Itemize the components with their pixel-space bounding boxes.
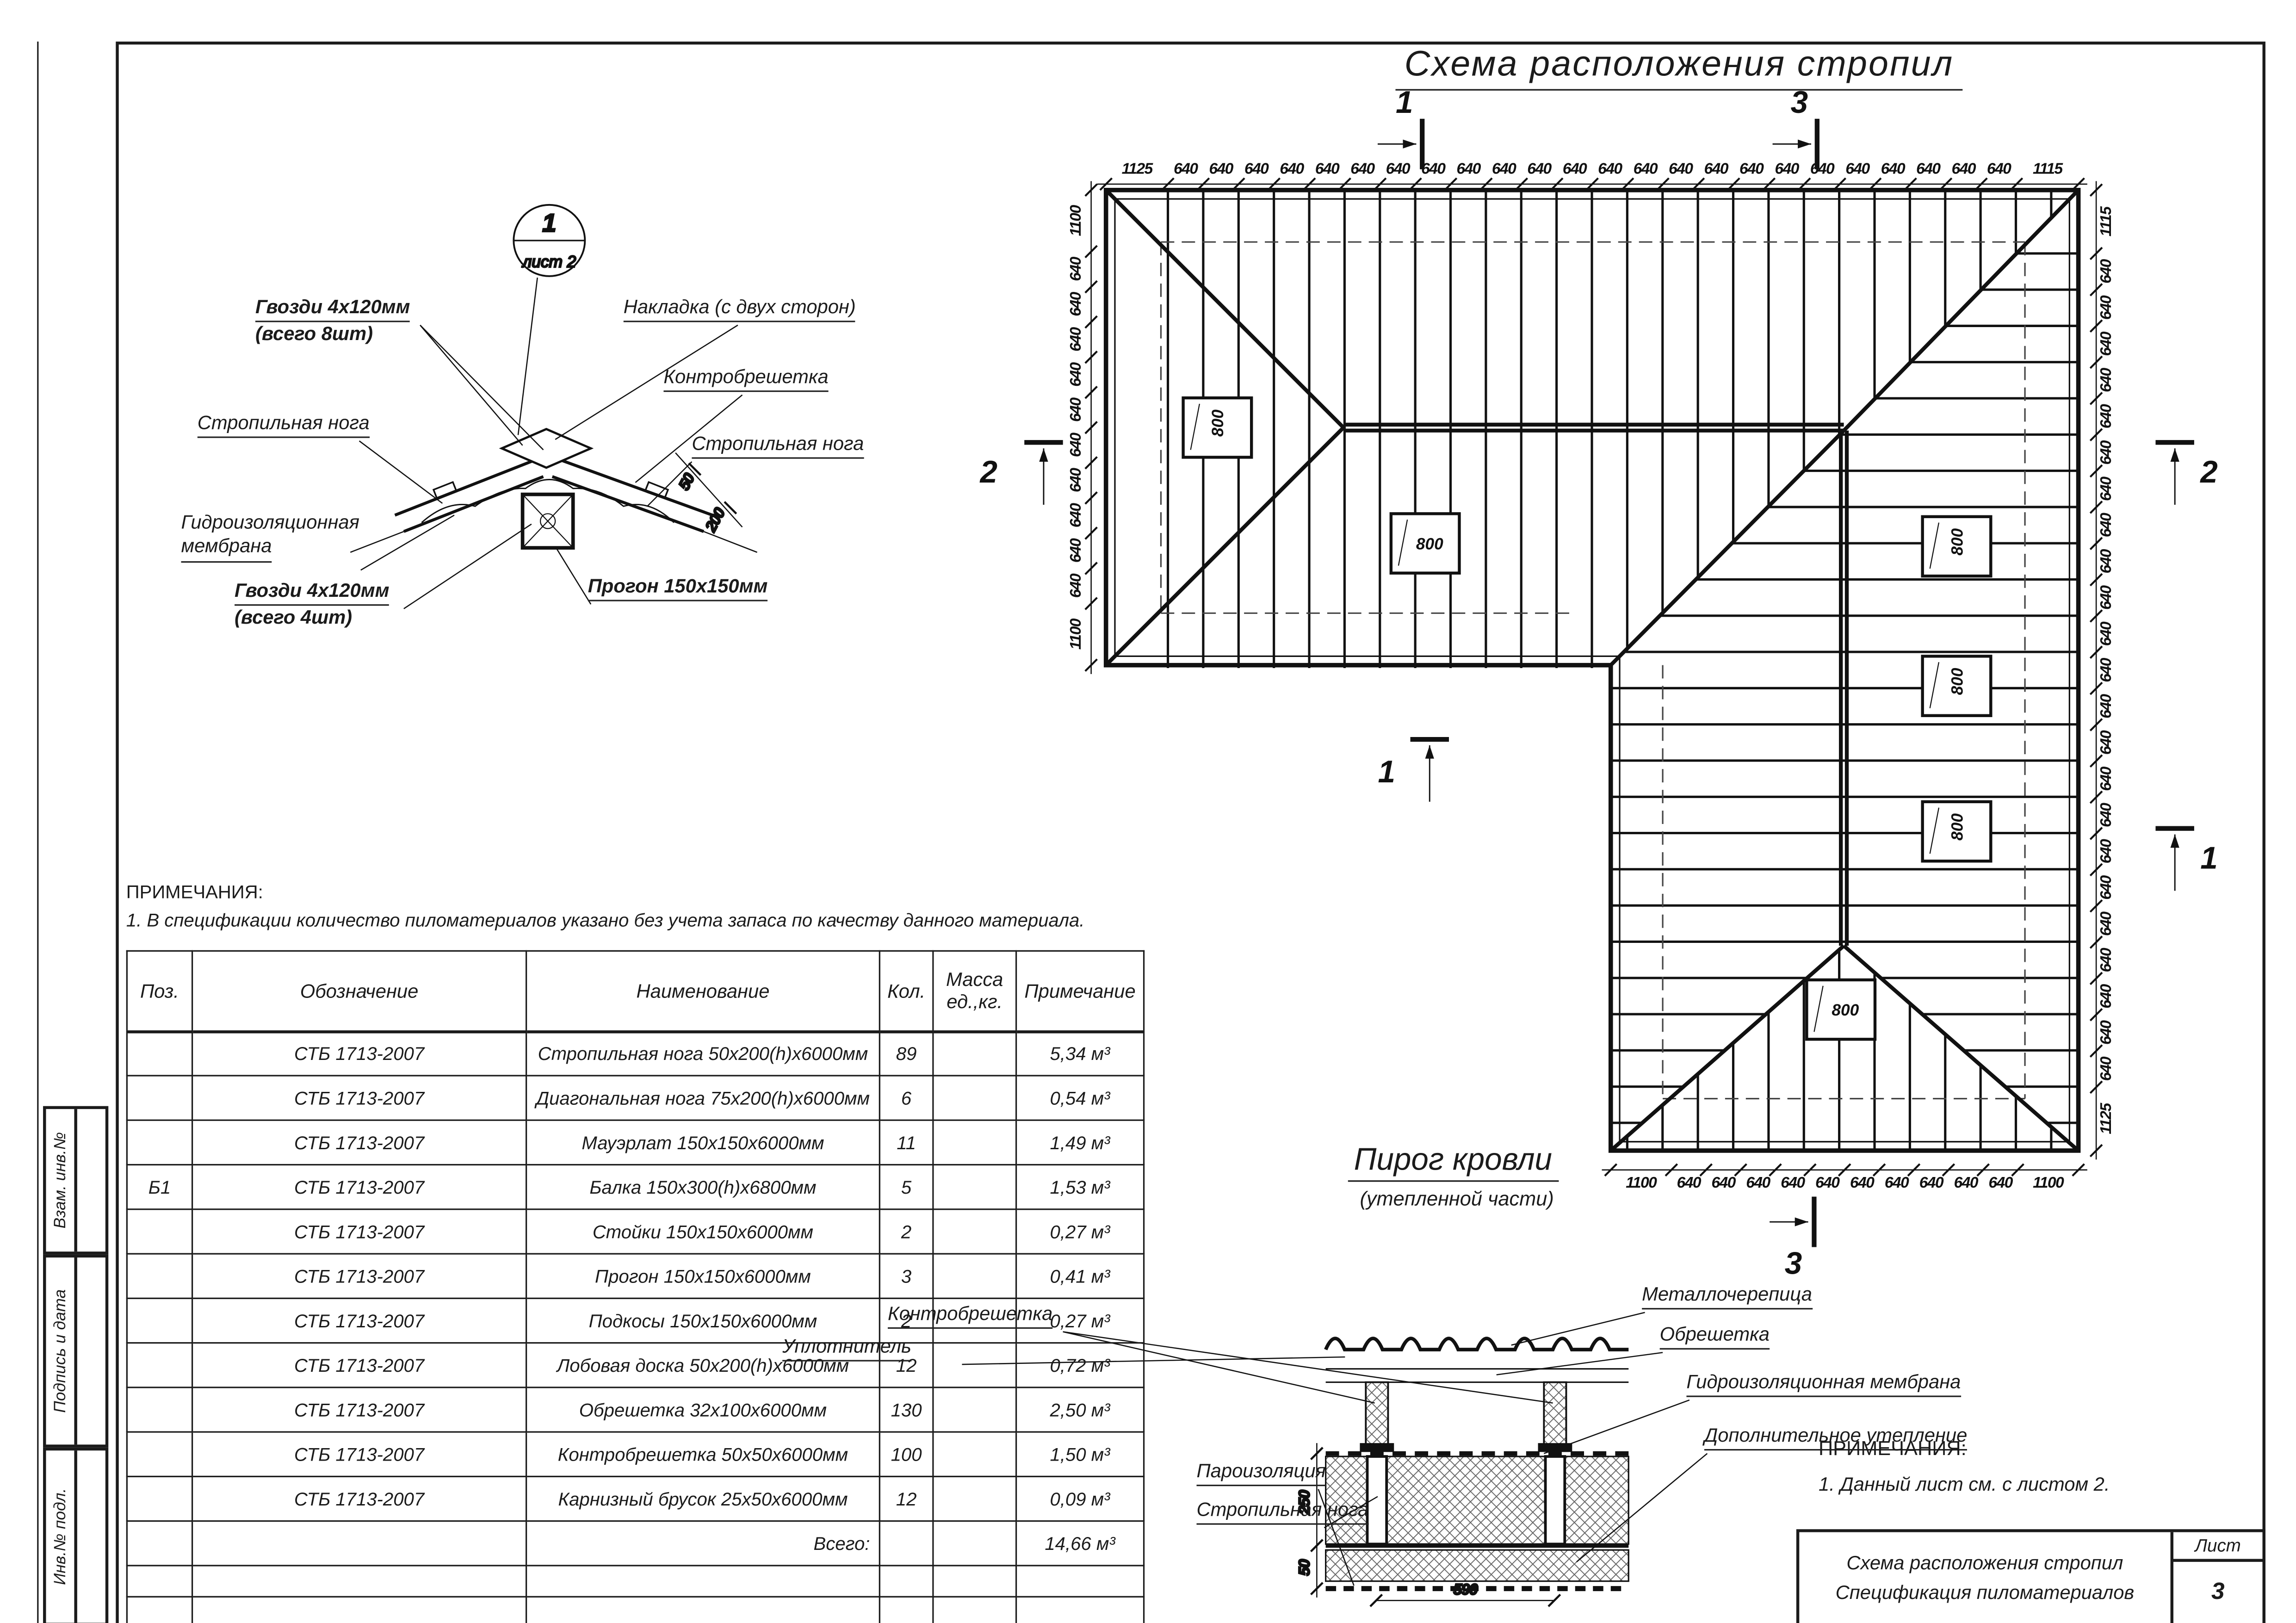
pie-heading: Пирог кровли — [1348, 1143, 1558, 1182]
stamp-cell-podpis: Подпись и дата — [43, 1255, 108, 1448]
callout-pie-counter-batten: Контробрешетка — [888, 1302, 1052, 1329]
metal-tile-profile — [1326, 1338, 1629, 1350]
svg-text:640: 640 — [1810, 160, 1835, 177]
svg-text:640: 640 — [2098, 694, 2115, 719]
stamp-cell-vzam: Взам. инв.№ — [43, 1106, 108, 1255]
table-row: СТБ 1713-2007Прогон 150х150х6000мм30,41 … — [127, 1254, 1144, 1298]
svg-text:640: 640 — [1850, 1174, 1875, 1191]
roof-opening: 800 — [1807, 980, 1875, 1039]
svg-text:640: 640 — [1711, 1174, 1736, 1191]
ridge-node-detail: 50 200 1 лист 2 — [350, 205, 757, 609]
svg-text:640: 640 — [2098, 1020, 2115, 1045]
svg-text:640: 640 — [1988, 1174, 2013, 1191]
svg-text:640: 640 — [1815, 1174, 1840, 1191]
svg-text:1: 1 — [1378, 755, 1395, 789]
svg-text:800: 800 — [1948, 813, 1966, 841]
section-marker: 2 — [979, 442, 1063, 505]
callout-pie-batten: Обрешетка — [1660, 1323, 1770, 1350]
section-marker: 1 — [2155, 829, 2217, 891]
svg-text:640: 640 — [1067, 291, 1084, 316]
svg-text:640: 640 — [1781, 1174, 1805, 1191]
svg-text:640: 640 — [1315, 160, 1340, 177]
svg-text:640: 640 — [1845, 160, 1870, 177]
page-title: Схема расположения стропил — [1395, 44, 1962, 90]
svg-text:3: 3 — [1785, 1246, 1802, 1281]
notes-right-heading: ПРИМЕЧАНИЯ: — [1819, 1437, 1967, 1459]
svg-text:640: 640 — [1598, 160, 1622, 177]
svg-text:640: 640 — [2098, 803, 2115, 827]
section-marker: 1 — [1378, 85, 1422, 169]
table-row: СТБ 1713-2007Обрешетка 32х100х6000мм1302… — [127, 1388, 1144, 1432]
notes-left-heading: ПРИМЕЧАНИЯ: — [126, 882, 263, 903]
svg-text:640: 640 — [1244, 160, 1269, 177]
svg-text:2: 2 — [2199, 455, 2217, 489]
plan-openings: 800800800800800800 — [1183, 398, 1991, 1039]
svg-text:640: 640 — [1739, 160, 1764, 177]
callout-rafter-left: Стропильная нога — [198, 411, 370, 439]
svg-text:640: 640 — [2098, 368, 2115, 392]
svg-text:640: 640 — [1669, 160, 1693, 177]
detail-marker-number: 1 — [542, 209, 556, 237]
svg-text:640: 640 — [1677, 1174, 1702, 1191]
roof-opening: 800 — [1923, 656, 1991, 715]
svg-text:640: 640 — [1067, 327, 1084, 351]
svg-text:1100: 1100 — [1626, 1174, 1657, 1191]
svg-text:640: 640 — [2098, 657, 2115, 682]
callout-plate: Накладка (с двух сторон) — [624, 296, 856, 323]
svg-text:640: 640 — [1919, 1174, 1944, 1191]
table-row: СТБ 1713-2007Диагональная нога 75х200(h)… — [127, 1076, 1144, 1120]
svg-text:640: 640 — [1987, 160, 2011, 177]
svg-text:1125: 1125 — [2098, 1103, 2115, 1134]
svg-text:640: 640 — [1527, 160, 1552, 177]
roof-plan: 1125640640640640640640640640640640640640… — [979, 85, 2217, 1281]
table-total-row: Всего:14,66 м³ — [127, 1521, 1144, 1566]
sheet-label: Лист — [2173, 1532, 2263, 1562]
title-block-line1: Схема расположения стропил — [1846, 1549, 2123, 1579]
col-name: Наименование — [526, 951, 880, 1031]
svg-text:800: 800 — [1948, 668, 1966, 695]
col-qty: Кол. — [879, 951, 933, 1031]
svg-text:640: 640 — [1067, 573, 1084, 598]
svg-text:1125: 1125 — [1122, 160, 1154, 177]
svg-text:640: 640 — [1954, 1174, 1979, 1191]
svg-text:640: 640 — [2098, 1056, 2115, 1081]
col-mass: Масса ед.,кг. — [933, 951, 1016, 1031]
svg-text:800: 800 — [1832, 1001, 1859, 1019]
svg-text:1100: 1100 — [1067, 618, 1084, 650]
table-row: СТБ 1713-2007Стропильная нога 50х200(h)х… — [127, 1031, 1144, 1076]
svg-text:640: 640 — [1916, 160, 1941, 177]
callout-pie-rafter: Стропильная нога — [1196, 1498, 1368, 1525]
svg-text:640: 640 — [2098, 440, 2115, 465]
drawing-sheet: 1125640640640640640640640640640640640640… — [0, 0, 2296, 1623]
svg-text:640: 640 — [2098, 585, 2115, 610]
svg-text:640: 640 — [1174, 160, 1198, 177]
svg-text:1115: 1115 — [2033, 160, 2063, 177]
svg-text:1115: 1115 — [2098, 206, 2115, 236]
svg-text:640: 640 — [2098, 984, 2115, 1008]
svg-text:640: 640 — [1067, 503, 1084, 527]
svg-text:640: 640 — [1951, 160, 1976, 177]
svg-text:640: 640 — [1067, 256, 1084, 281]
svg-text:640: 640 — [1350, 160, 1375, 177]
col-pos: Поз. — [127, 951, 192, 1031]
svg-text:640: 640 — [2098, 259, 2115, 283]
callout-purlin: Прогон 150х150мм — [588, 575, 768, 602]
svg-text:1: 1 — [2200, 841, 2217, 875]
sheet-number: 3 — [2173, 1562, 2263, 1623]
stamp-cell-inv: Инв.№ подл. — [43, 1448, 108, 1623]
callout-pie-membrane: Гидроизоляционная мембрана — [1686, 1370, 1961, 1398]
section-marker: 1 — [1378, 739, 1449, 802]
svg-text:640: 640 — [1067, 538, 1084, 563]
notes-left-item: 1. В спецификации количество пиломатериа… — [126, 910, 1085, 931]
svg-text:640: 640 — [1209, 160, 1233, 177]
section-markers: 1322113 — [979, 85, 2217, 1281]
callout-pie-seal: Уплотнитель — [782, 1335, 911, 1362]
col-sign: Обозначение — [192, 951, 526, 1031]
callout-counter-batten: Контробрешетка — [663, 365, 828, 392]
pie-dim-50: 50 — [1296, 1559, 1313, 1576]
svg-text:640: 640 — [1634, 160, 1658, 177]
callout-rafter-right: Стропильная нога — [692, 432, 864, 459]
svg-text:640: 640 — [2098, 477, 2115, 501]
section-marker: 3 — [1770, 1196, 1814, 1281]
callout-nails-bottom: Гвозди 4х120мм (всего 4шт) — [235, 579, 389, 631]
svg-text:640: 640 — [1280, 160, 1304, 177]
svg-text:640: 640 — [1881, 160, 1906, 177]
svg-text:640: 640 — [1563, 160, 1587, 177]
table-row: СТБ 1713-2007Стойки 150х150х6000мм20,27 … — [127, 1209, 1144, 1254]
sheet-viewport: 1125640640640640640640640640640640640640… — [0, 0, 2296, 1623]
detail-dim-200: 200 — [702, 505, 729, 535]
svg-text:640: 640 — [2098, 404, 2115, 428]
svg-text:640: 640 — [2098, 513, 2115, 537]
svg-text:640: 640 — [2098, 295, 2115, 320]
svg-text:640: 640 — [1885, 1174, 1909, 1191]
svg-text:640: 640 — [1746, 1174, 1770, 1191]
svg-text:1100: 1100 — [1067, 204, 1084, 236]
notes-right-item: 1. Данный лист см. с листом 2. — [1819, 1473, 2110, 1495]
svg-text:640: 640 — [2098, 621, 2115, 646]
svg-text:640: 640 — [1067, 362, 1084, 387]
svg-text:640: 640 — [1067, 468, 1084, 492]
svg-text:640: 640 — [1067, 397, 1084, 422]
svg-text:640: 640 — [1704, 160, 1728, 177]
table-empty-row — [127, 1566, 1144, 1597]
svg-text:640: 640 — [2098, 730, 2115, 755]
callout-pie-vapor-barrier: Пароизоляция — [1196, 1459, 1325, 1487]
pie-subheading: (утепленной части) — [1360, 1188, 1553, 1210]
svg-text:800: 800 — [1416, 535, 1443, 553]
svg-text:800: 800 — [1948, 528, 1966, 555]
svg-text:800: 800 — [1209, 409, 1227, 437]
svg-text:640: 640 — [1421, 160, 1446, 177]
callout-pie-metal-tile: Металлочерепица — [1642, 1283, 1812, 1310]
title-block: Схема расположения стропил Спецификация … — [1796, 1529, 2265, 1623]
lumber-spec-table: Поз. Обозначение Наименование Кол. Масса… — [126, 950, 1145, 1623]
roof-opening: 800 — [1923, 802, 1991, 861]
table-row: СТБ 1713-2007Контробрешетка 50х50х6000мм… — [127, 1432, 1144, 1476]
svg-text:640: 640 — [1775, 160, 1799, 177]
svg-text:640: 640 — [2098, 875, 2115, 899]
roof-opening: 800 — [1923, 517, 1991, 576]
svg-text:640: 640 — [2098, 839, 2115, 863]
svg-text:1100: 1100 — [2033, 1174, 2064, 1191]
table-row: Б1СТБ 1713-2007Балка 150х300(h)х6800мм51… — [127, 1165, 1144, 1209]
col-note: Примечание — [1016, 951, 1144, 1031]
callout-membrane: Гидроизоляционная мембрана — [181, 511, 359, 562]
svg-text:640: 640 — [1386, 160, 1411, 177]
roof-opening: 800 — [1391, 514, 1460, 573]
table-row: СТБ 1713-2007Мауэрлат 150х150х6000мм111,… — [127, 1120, 1144, 1165]
svg-text:640: 640 — [2098, 911, 2115, 936]
svg-text:640: 640 — [1492, 160, 1516, 177]
section-marker: 2 — [2155, 442, 2217, 505]
pie-dim-590: 590 — [1454, 1581, 1478, 1598]
title-block-line2: Спецификация пиломатериалов — [1836, 1578, 2135, 1608]
svg-text:640: 640 — [2098, 948, 2115, 972]
svg-text:640: 640 — [2098, 331, 2115, 356]
svg-text:640: 640 — [1067, 433, 1084, 457]
svg-text:640: 640 — [2098, 549, 2115, 573]
svg-text:640: 640 — [2098, 766, 2115, 791]
svg-text:2: 2 — [979, 455, 997, 489]
table-empty-row — [127, 1597, 1144, 1623]
roof-opening: 800 — [1183, 398, 1252, 457]
detail-marker-sheet: лист 2 — [521, 253, 576, 271]
section-marker: 3 — [1773, 85, 1817, 169]
svg-text:640: 640 — [1456, 160, 1481, 177]
callout-nails-top: Гвозди 4х120мм (всего 8шт) — [255, 296, 410, 347]
table-row: СТБ 1713-2007Карнизный брусок 25х50х6000… — [127, 1476, 1144, 1521]
table-row: СТБ 1713-2007Лобовая доска 50х200(h)х600… — [127, 1343, 1144, 1388]
